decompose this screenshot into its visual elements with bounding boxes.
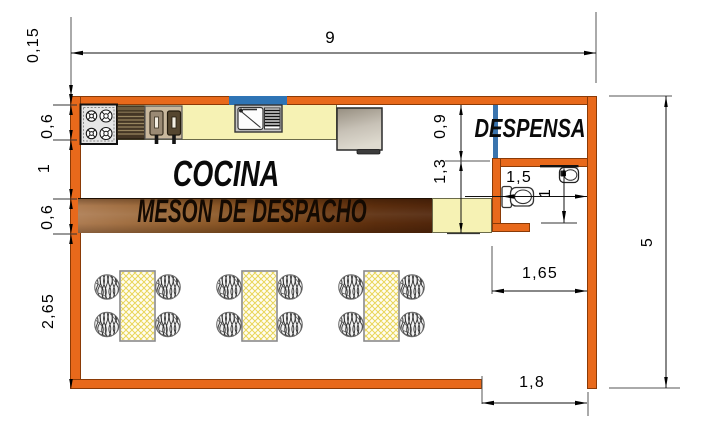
- svg-text:9: 9: [325, 28, 334, 47]
